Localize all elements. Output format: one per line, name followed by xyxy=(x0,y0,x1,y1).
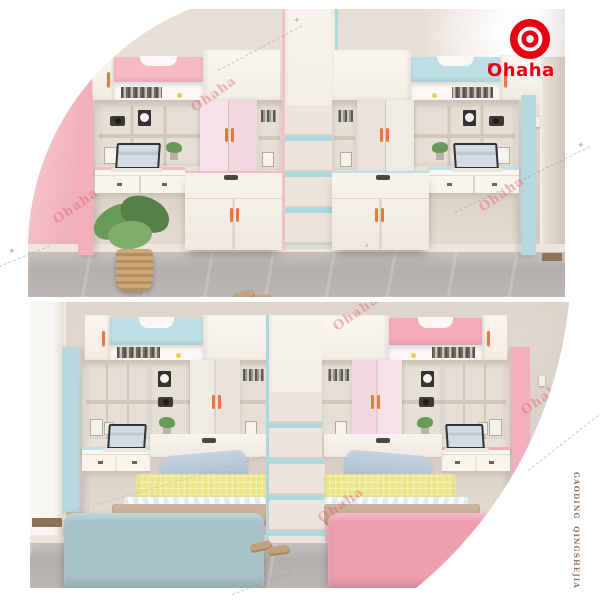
side-panel xyxy=(519,95,536,255)
open-shelf-column xyxy=(322,365,352,439)
staircase xyxy=(282,9,338,249)
bed-footboard xyxy=(64,513,264,588)
desk-drawers xyxy=(442,454,510,471)
wardrobe-handles xyxy=(386,128,389,142)
sparkle-icon: ✦ xyxy=(8,247,16,256)
small-plant-decor xyxy=(417,417,433,435)
slippers xyxy=(250,540,294,558)
bunk-shelf-books xyxy=(110,345,203,360)
clock-decor xyxy=(158,371,171,387)
logo-text: Ohaha® xyxy=(487,62,495,80)
photo-top-loft-desks: Ohaha Ohaha Ohaha xyxy=(28,9,565,297)
potted-plant xyxy=(90,197,180,293)
recessed-handle xyxy=(224,175,238,180)
outer-cabinet xyxy=(85,315,110,360)
bunk-guardrail xyxy=(110,318,203,345)
bullseye-icon xyxy=(509,18,551,60)
bed-unit-blue xyxy=(62,315,270,588)
cabinet-handle xyxy=(102,331,105,346)
sparkle-icon: ✦ xyxy=(248,572,254,579)
wardrobe-handles xyxy=(377,395,380,409)
clock-decor xyxy=(421,371,434,387)
camera-decor xyxy=(419,397,434,407)
laptop xyxy=(115,143,161,169)
laptop xyxy=(445,424,485,449)
staircase xyxy=(266,315,328,542)
staircase-steps xyxy=(269,392,325,542)
bottom-cabinet-handles xyxy=(381,208,384,222)
vertical-brand-text: GAODING QINGSHEJIA xyxy=(572,472,581,600)
upper-cabinet xyxy=(203,315,270,360)
sparkle-icon: ✦ xyxy=(293,16,301,25)
cabinet-handle xyxy=(107,72,110,87)
photo-bottom-beds: Ohaha Ohaha Ohaha xyxy=(30,302,569,588)
light-switch xyxy=(539,376,545,386)
clock-decor xyxy=(138,110,151,126)
laptop xyxy=(107,424,147,449)
bunk-guardrail xyxy=(389,318,482,345)
wardrobe-doors xyxy=(200,100,257,178)
camera-decor xyxy=(158,397,173,407)
desk-drawers xyxy=(95,175,185,193)
small-plant-decor xyxy=(166,142,182,160)
bunk-shelf-books xyxy=(114,82,203,100)
window-light-wall xyxy=(30,302,66,544)
laptop xyxy=(453,143,499,169)
bottom-cabinet-handles xyxy=(230,208,233,222)
door-threshold xyxy=(32,518,62,527)
small-plant-decor xyxy=(432,142,448,160)
slipper xyxy=(267,545,290,557)
bunk-shelf-books xyxy=(389,345,482,360)
bed-unit-pink xyxy=(322,315,530,588)
desk-drawers xyxy=(82,454,150,471)
product-collage: Ohaha Ohaha Ohaha xyxy=(0,0,600,600)
staircase-steps xyxy=(285,105,335,245)
side-panel xyxy=(62,347,82,512)
open-shelf-column xyxy=(334,106,355,170)
clock-decor xyxy=(463,110,476,126)
wicker-pot xyxy=(116,249,153,291)
bunk-guardrail xyxy=(114,57,203,82)
wardrobe-handles xyxy=(225,128,228,142)
small-plant-decor xyxy=(159,417,175,435)
side-panel xyxy=(510,347,530,512)
bed-footboard xyxy=(328,513,528,588)
logo-wordmark: Ohaha xyxy=(487,62,555,80)
door-threshold xyxy=(542,253,562,261)
camera-decor xyxy=(489,116,504,126)
upper-cabinet xyxy=(334,50,411,100)
bunk-shelf-books xyxy=(411,82,500,100)
slippers xyxy=(233,289,273,297)
wardrobe-handles xyxy=(212,395,215,409)
wardrobe-doors xyxy=(190,360,240,445)
outer-cabinet xyxy=(93,55,114,100)
open-shelf-column xyxy=(259,106,280,170)
outer-cabinet xyxy=(482,315,507,360)
bottom-cabinet-doors xyxy=(332,198,429,249)
recessed-handle xyxy=(376,175,390,180)
brand-logo: Ohaha® xyxy=(487,18,573,62)
camera-decor xyxy=(110,116,125,126)
cabinet-handle xyxy=(487,331,490,346)
sparkle-icon: ✦ xyxy=(364,243,370,250)
bottom-cabinet-doors xyxy=(185,198,282,249)
